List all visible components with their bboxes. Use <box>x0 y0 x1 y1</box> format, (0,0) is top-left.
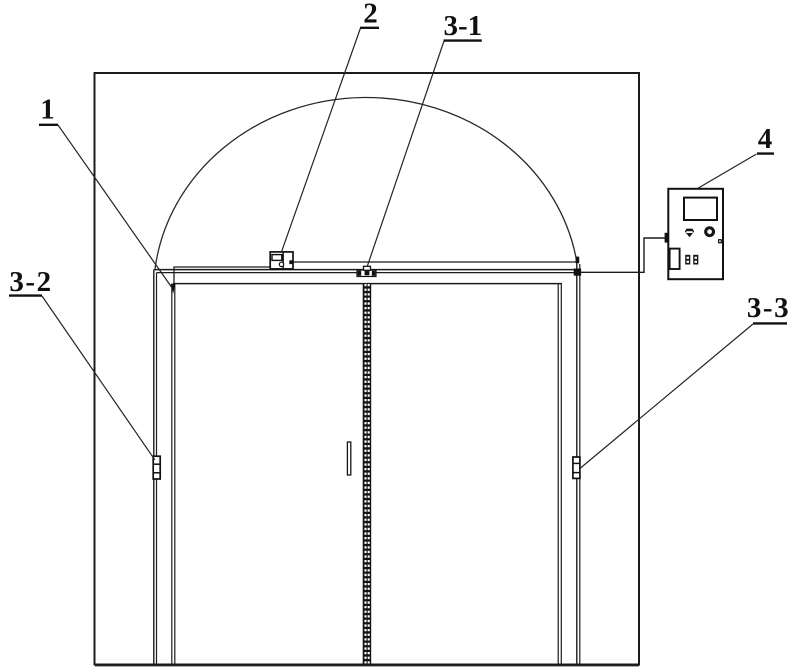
svg-text:4: 4 <box>758 123 773 155</box>
svg-text:2: 2 <box>363 0 378 29</box>
svg-text:1: 1 <box>40 94 55 126</box>
svg-text:3-2: 3-2 <box>9 266 52 298</box>
svg-text:3-1: 3-1 <box>443 10 482 42</box>
svg-text:3-3: 3-3 <box>747 292 790 324</box>
